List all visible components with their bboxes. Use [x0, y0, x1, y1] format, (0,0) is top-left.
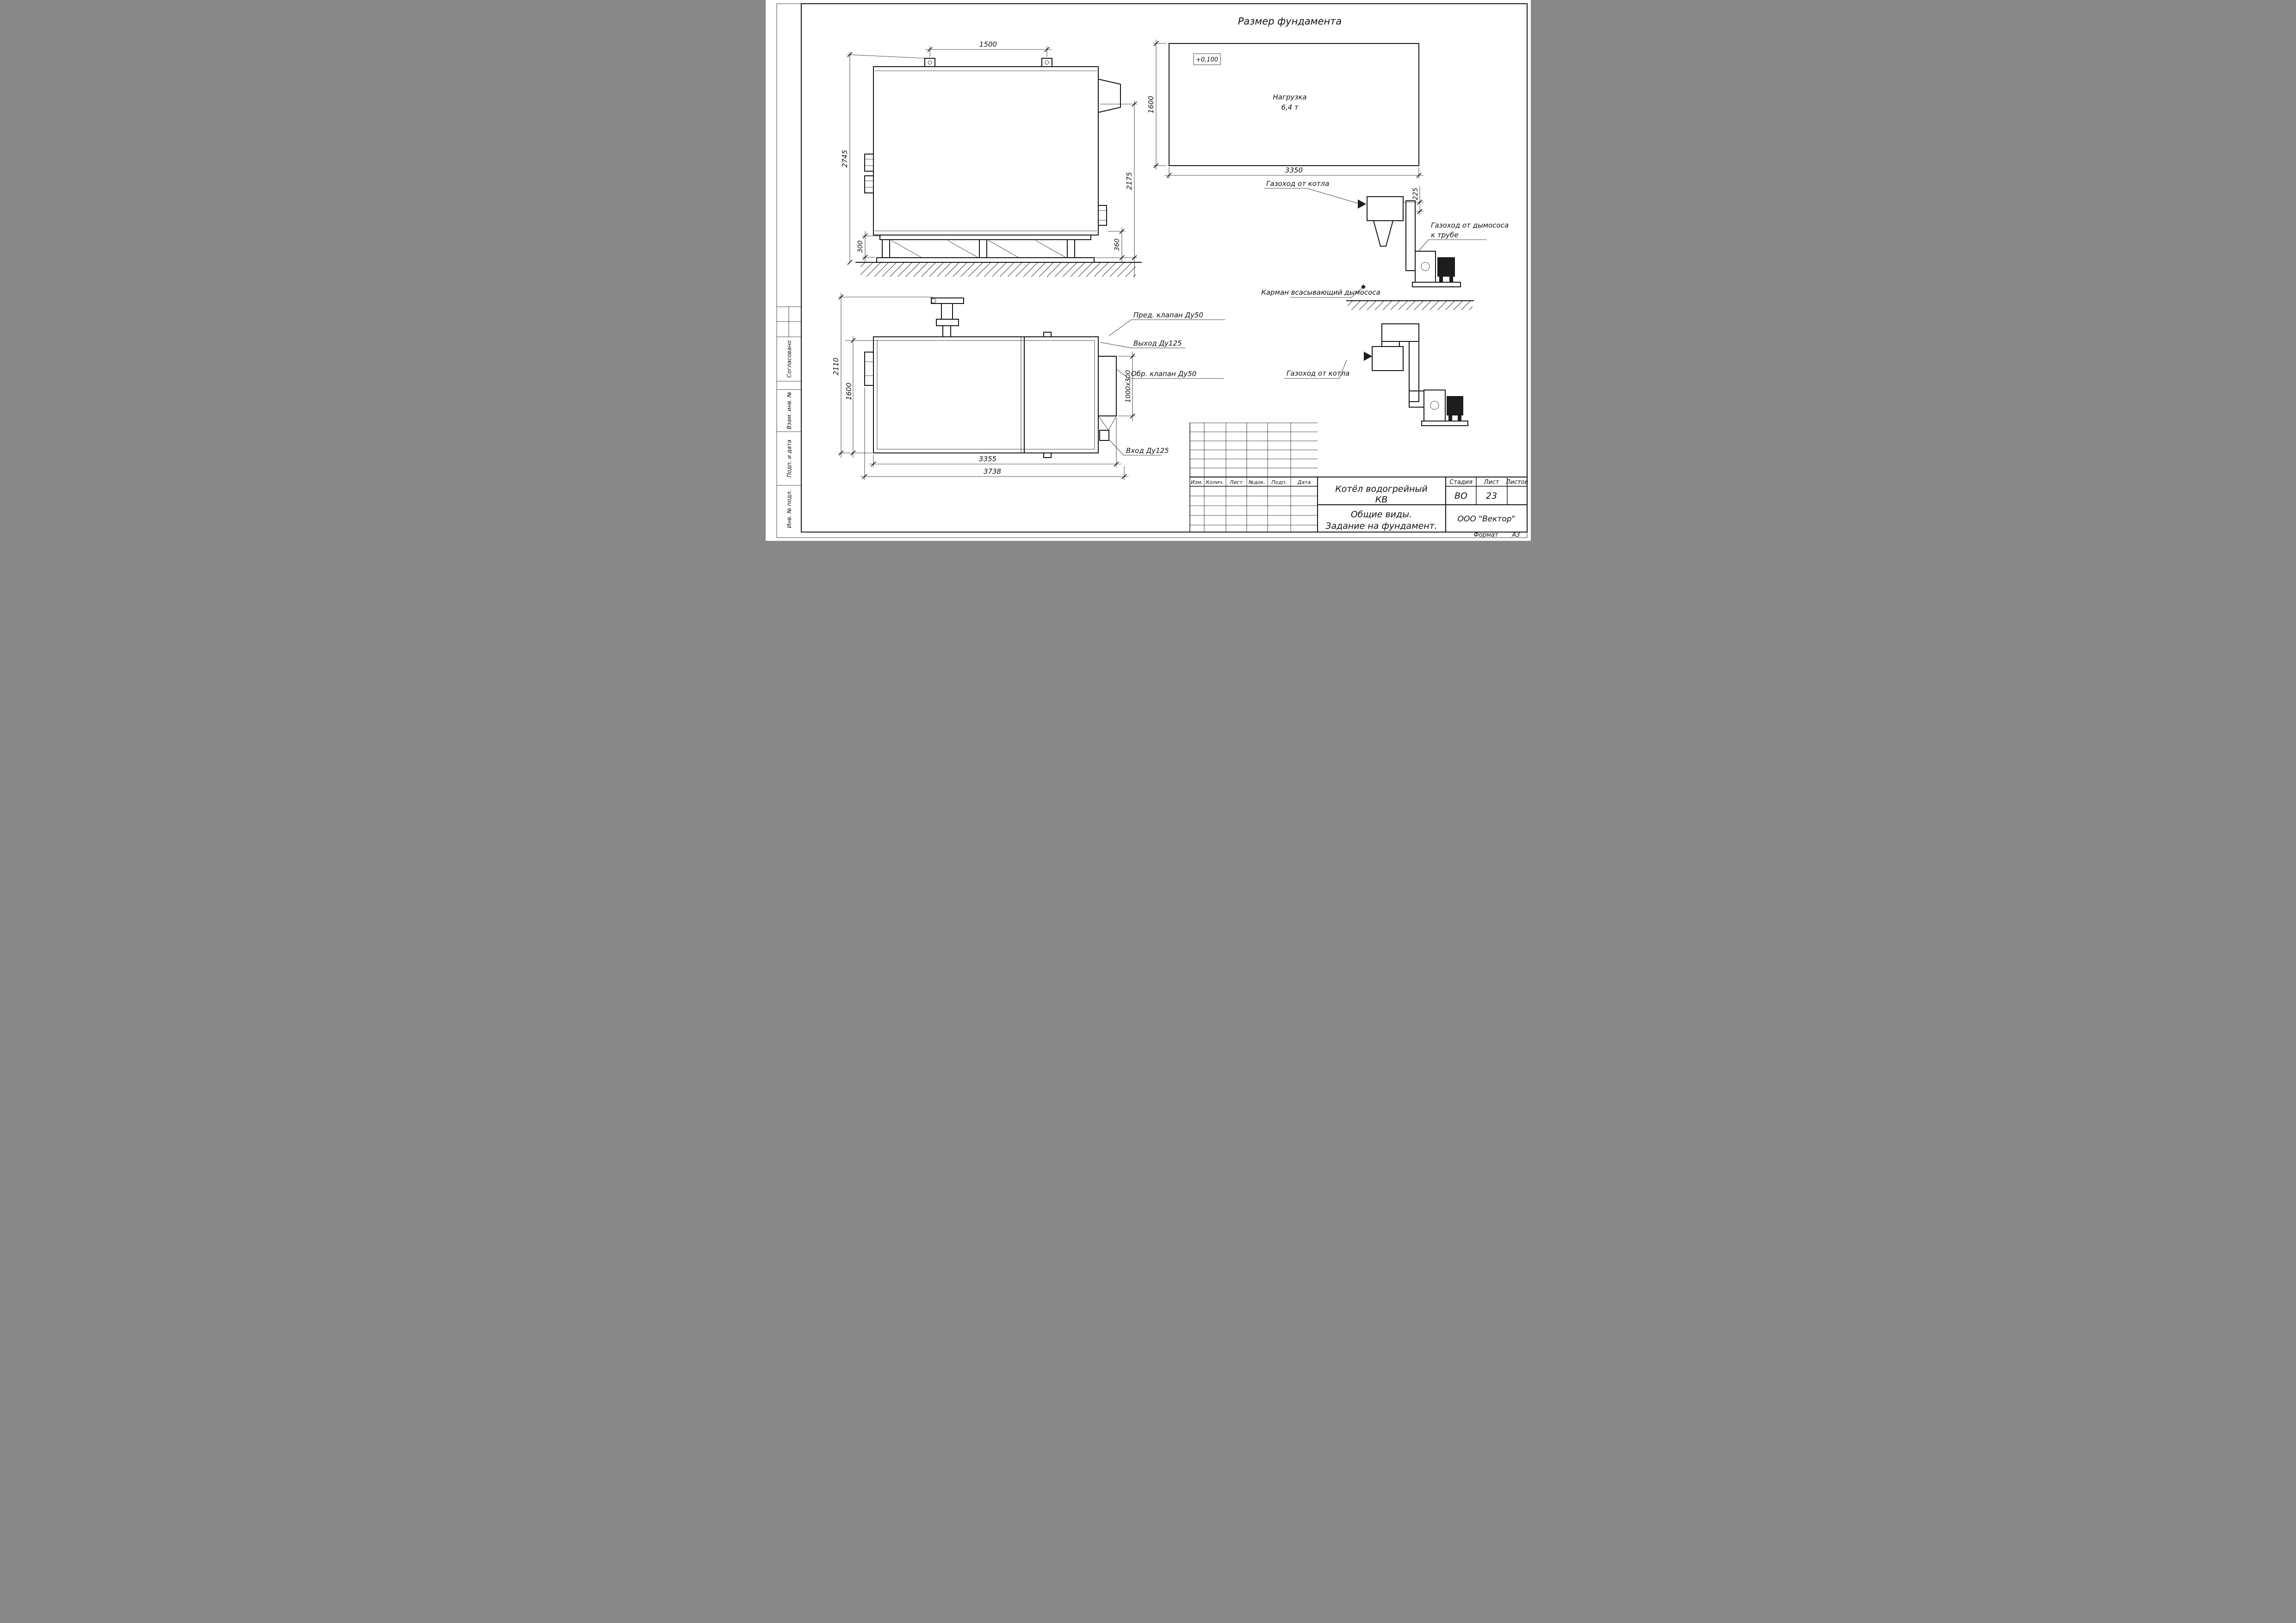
left-stamp-column: Согласовано Взам. инв. № Подп. и дата Ин…: [777, 307, 801, 528]
dim-plan-height: 2110: [832, 358, 840, 375]
boiler-side-view: 1500 2745 2175 300 360: [841, 40, 1141, 278]
revision-header-data: Дата: [1297, 479, 1311, 485]
subtitle-line2: Задание на фундамент.: [1325, 521, 1437, 531]
sheet-label: Лист: [1483, 479, 1499, 486]
boiler-plan-view: 2110 1600 3355 3738 1000x300 Пред. клапа…: [832, 293, 1225, 480]
dim-plan-inner-height: 1600: [845, 383, 853, 400]
page-title: Размер фундамента: [1238, 16, 1342, 27]
dim-foundation-width: 1600: [1147, 96, 1155, 113]
drawing-canvas: Согласовано Взам. инв. № Подп. и дата Ин…: [766, 0, 1531, 541]
foundation-load-line1: Нагрузка: [1273, 93, 1306, 101]
foundation-level-mark: +0,100: [1195, 56, 1218, 63]
revision-header-list: Лист: [1229, 479, 1243, 485]
dim-side-foot-right: 360: [1114, 239, 1121, 251]
revision-header-izm: Изм.: [1191, 479, 1203, 485]
sheets-label: Листов: [1505, 479, 1528, 486]
doc-name-line1: Котёл водогрейный: [1335, 484, 1428, 494]
dim-duct-offset: 225: [1412, 188, 1419, 200]
dim-plan-length: 3355: [978, 455, 996, 463]
dim-side-foot-left: 300: [857, 241, 864, 253]
dim-side-right-height: 2175: [1125, 172, 1133, 190]
label-inlet: Вход Ду125: [1126, 446, 1169, 455]
revision-header-ndok: №док.: [1248, 479, 1265, 485]
stamp-replace-inv-label: Взам. инв. №: [786, 391, 792, 429]
company-name: ООО "Вектор": [1457, 514, 1515, 524]
drawing-sheet: Согласовано Взам. инв. № Подп. и дата Ин…: [766, 0, 1531, 541]
label-outlet: Выход Ду125: [1133, 339, 1182, 347]
foundation-load-line2: 6,4 т: [1281, 103, 1299, 112]
format-value: А3: [1511, 532, 1520, 539]
dim-side-top: 1500: [979, 40, 996, 49]
stamp-inv-orig-label: Инв. № подл.: [786, 490, 792, 528]
label-safety-valve: Пред. клапан Ду50: [1133, 311, 1203, 319]
label-duct-to-stack-line2: к трубе: [1431, 231, 1458, 239]
label-check-valve: Обр. клапан Ду50: [1131, 370, 1196, 378]
stage-label: Стадия: [1449, 479, 1473, 486]
label-duct-to-stack-line1: Газоход от дымососа: [1431, 221, 1509, 229]
gas-duct-view-lower: Газоход от котла: [1284, 324, 1468, 426]
subtitle-line1: Общие виды.: [1350, 509, 1411, 520]
dim-plan-total-length: 3738: [983, 467, 1001, 476]
stamp-agreed-label: Согласовано: [786, 341, 792, 378]
dim-foundation-length: 3350: [1285, 166, 1302, 174]
foundation-plan: +0,100 Нагрузка 6,4 т 1600 3350: [1147, 40, 1423, 179]
stage-value: ВО: [1454, 491, 1467, 501]
revision-header-kolich: Колич.: [1206, 479, 1224, 485]
revision-header-podp: Подп.: [1271, 479, 1287, 485]
sheet-value: 23: [1485, 491, 1497, 501]
format-label: Формат: [1473, 532, 1498, 539]
doc-name-line2: КВ: [1375, 495, 1387, 505]
dim-side-height: 2745: [841, 150, 849, 167]
label-duct-from-boiler-top: Газоход от котла: [1266, 180, 1329, 188]
label-suction-pocket: Карман всасывающий дымососа: [1261, 288, 1380, 297]
gas-duct-view-upper: Газоход от котла 225 Карман всасывающий …: [1261, 180, 1509, 310]
stamp-sign-date-label: Подп. и дата: [786, 440, 792, 477]
